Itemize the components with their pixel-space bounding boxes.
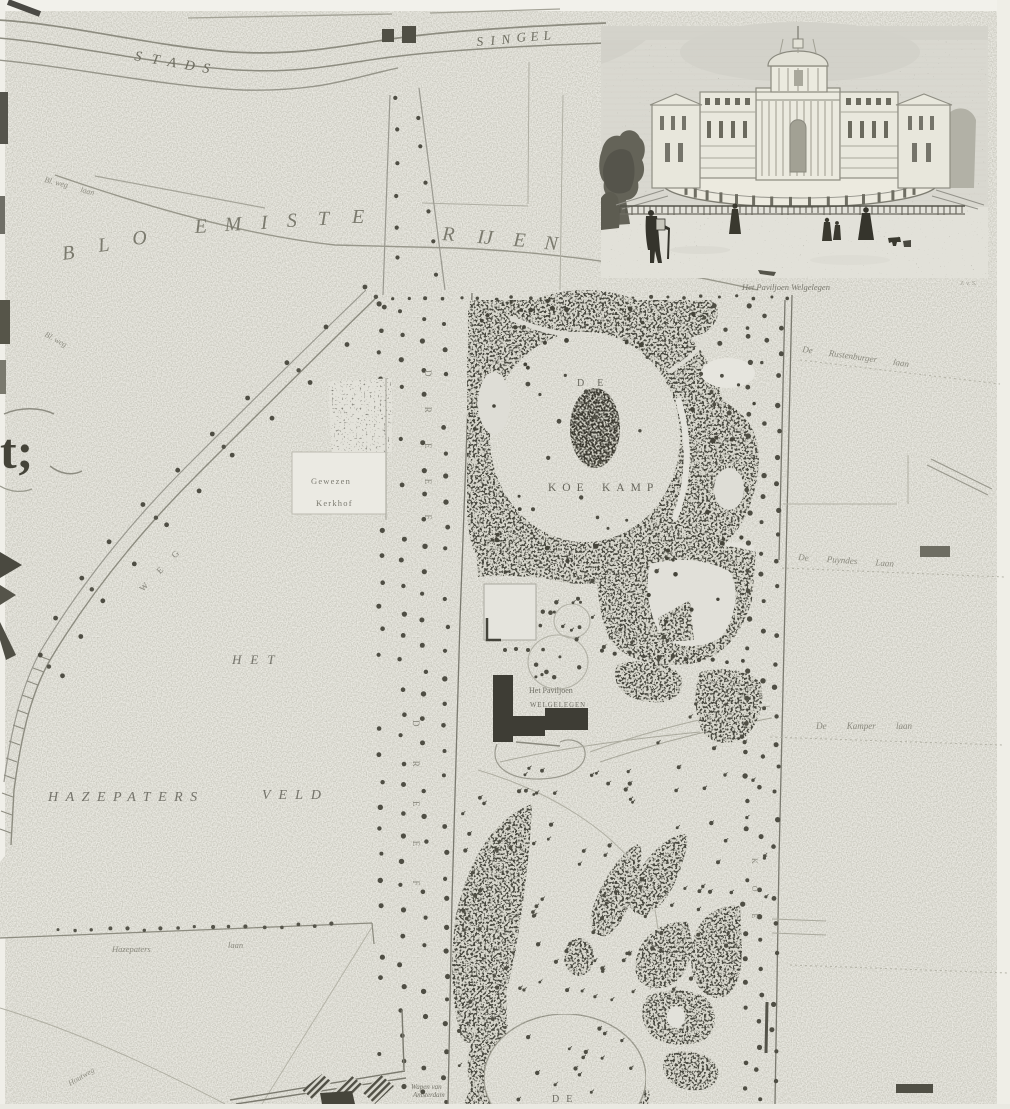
svg-text:O: O — [131, 227, 148, 250]
svg-text:E: E — [529, 28, 540, 44]
svg-text:Kerkhof: Kerkhof — [316, 498, 353, 508]
svg-text:L: L — [542, 27, 552, 43]
svg-text:E: E — [351, 206, 364, 228]
svg-text:Gewezen: Gewezen — [311, 476, 351, 486]
svg-text:Het Paviljoen: Het Paviljoen — [529, 686, 573, 695]
svg-text:R: R — [441, 223, 456, 246]
svg-text:K O E: K O E — [750, 858, 759, 928]
svg-text:DE: DE — [552, 1094, 579, 1104]
svg-text:J. v. S.: J. v. S. — [960, 280, 977, 287]
svg-text:S: S — [286, 210, 297, 232]
svg-text:KAMP: KAMP — [602, 482, 659, 494]
svg-text:De Kamper laan: De Kamper laan — [815, 721, 912, 731]
svg-text:E: E — [193, 215, 207, 238]
svg-text:Amsterdam: Amsterdam — [412, 1091, 445, 1099]
svg-text:DE: DE — [577, 378, 616, 389]
svg-text:KOE: KOE — [548, 482, 590, 494]
svg-text:HET: HET — [231, 652, 284, 667]
svg-text:Hazepaters: Hazepaters — [111, 944, 151, 954]
svg-text:t;: t; — [0, 423, 33, 479]
svg-text:M: M — [223, 213, 243, 236]
svg-text:E: E — [512, 229, 527, 252]
svg-text:Wapen van: Wapen van — [411, 1083, 442, 1091]
svg-text:D R E E F: D R E E F — [423, 370, 433, 534]
svg-text:D R E E F: D R E E F — [411, 720, 421, 902]
svg-text:WELGELEGEN: WELGELEGEN — [530, 702, 586, 709]
svg-text:laan: laan — [228, 940, 243, 950]
svg-text:Het Paviljoen Welgelegen: Het Paviljoen Welgelegen — [741, 282, 830, 292]
svg-text:VELD: VELD — [262, 788, 329, 803]
svg-text:HAZEPATERS: HAZEPATERS — [47, 790, 205, 805]
svg-text:IJ: IJ — [476, 226, 495, 249]
